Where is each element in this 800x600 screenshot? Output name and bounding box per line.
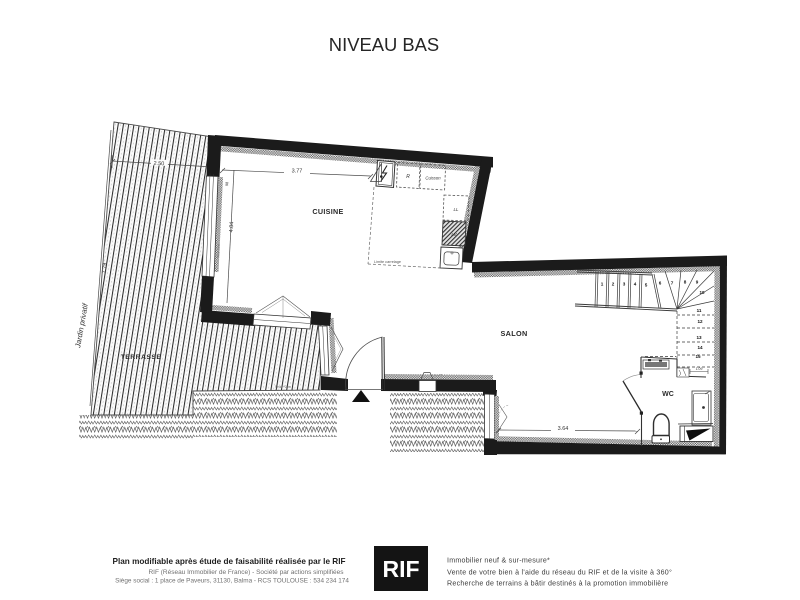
svg-text:6: 6 (659, 281, 662, 286)
svg-text:R: R (406, 174, 410, 180)
svg-text:14: 14 (697, 345, 703, 350)
svg-text:CUISINE: CUISINE (312, 207, 343, 216)
svg-text:Immobilier neuf & sur-mesure*: Immobilier neuf & sur-mesure* (447, 557, 550, 565)
svg-text:1.09: 1.09 (696, 367, 703, 371)
svg-text:1: 1 (601, 282, 604, 287)
svg-text:98: 98 (225, 182, 229, 187)
svg-text:ht +75: ht +75 (434, 373, 443, 377)
svg-text:RIF: RIF (382, 556, 419, 582)
svg-text:7: 7 (671, 281, 674, 286)
svg-text:12: 12 (697, 319, 703, 324)
svg-text:8: 8 (684, 280, 687, 285)
svg-text:13: 13 (696, 335, 702, 340)
svg-text:NIVEAU BAS: NIVEAU BAS (329, 34, 439, 55)
svg-text:11: 11 (697, 308, 702, 313)
svg-text:Plan modifiable après étude de: Plan modifiable après étude de faisabili… (113, 557, 346, 566)
svg-text:Vente de votre bien à l'aide d: Vente de votre bien à l'aide du réseau d… (447, 569, 672, 577)
svg-text:RIF (Réseau Immobilier de Fra: RIF (Réseau Immobilier de France) - Soci… (148, 569, 344, 576)
svg-text:3: 3 (623, 282, 626, 287)
svg-text:4: 4 (634, 282, 637, 287)
svg-text:Seuil +2cm: Seuil +2cm (275, 385, 291, 389)
svg-text:7.79: 7.79 (102, 263, 109, 274)
svg-text:Limite carrelage: Limite carrelage (374, 260, 401, 264)
svg-text:9: 9 (696, 280, 699, 285)
svg-text:Seuil 2cm: Seuil 2cm (216, 244, 221, 259)
svg-text:4.04: 4.04 (229, 222, 236, 233)
svg-text:Recherche de terrains à bâtir: Recherche de terrains à bâtir destinés à… (447, 580, 668, 588)
svg-text:SALON: SALON (500, 329, 527, 338)
svg-text:10: 10 (699, 290, 705, 295)
svg-text:TERRASSE: TERRASSE (121, 354, 162, 361)
svg-text:2.50: 2.50 (153, 161, 164, 168)
svg-text:WC: WC (662, 391, 674, 398)
svg-text:5: 5 (645, 283, 648, 288)
svg-text:15: 15 (695, 354, 701, 359)
svg-text:2: 2 (612, 282, 615, 287)
svg-text:3.64: 3.64 (558, 426, 569, 432)
svg-text:Siège social : 1 place de Pave: Siège social : 1 place de Paveurs, 31130… (115, 578, 349, 585)
svg-text:3.77: 3.77 (292, 169, 303, 175)
svg-text:Cuisson: Cuisson (425, 176, 441, 181)
svg-text:LL: LL (453, 207, 459, 212)
